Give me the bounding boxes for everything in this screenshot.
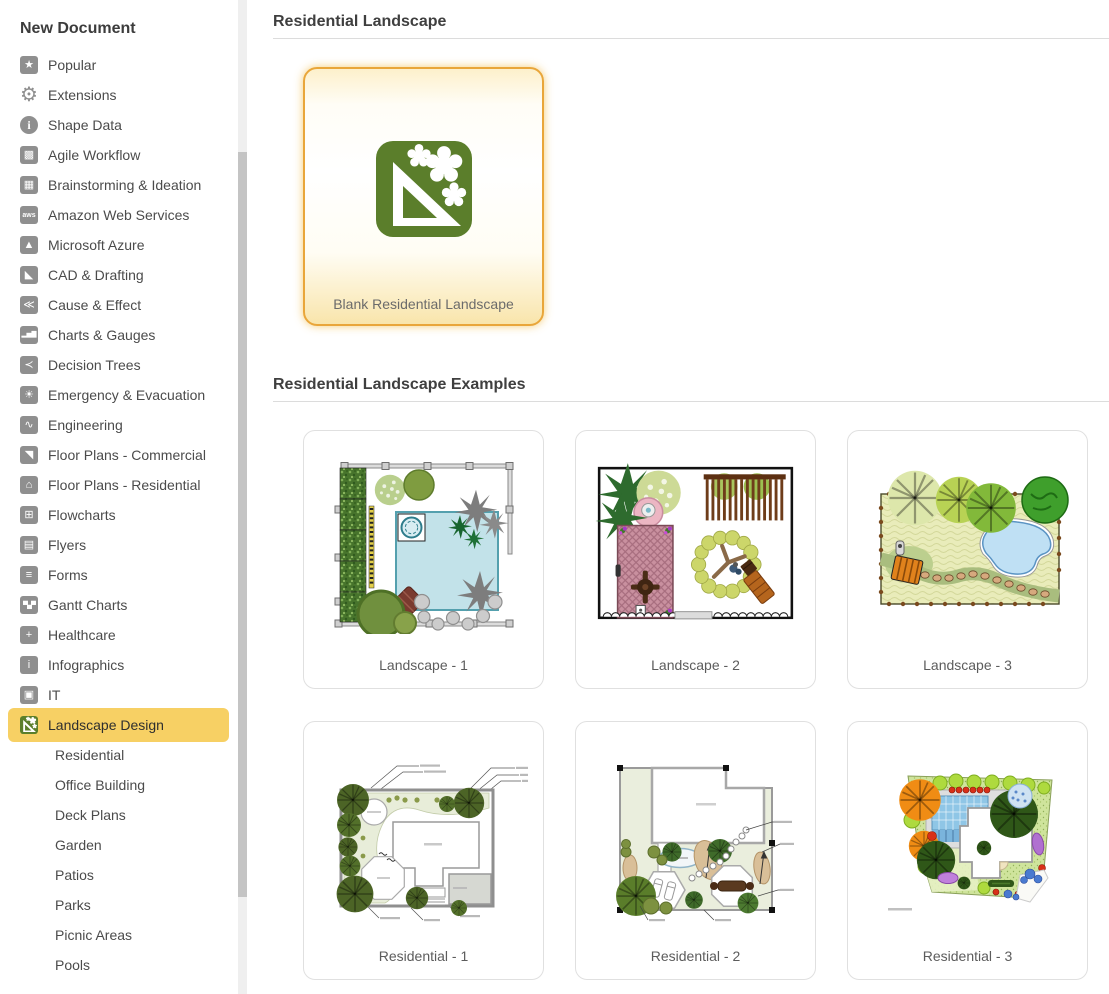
star-icon: ★ — [20, 56, 38, 74]
examples-row-2: Residential - 1 — [303, 721, 1109, 980]
flowchart-icon: ⊞ — [20, 506, 38, 524]
fishbone-icon: ≪ — [20, 296, 38, 314]
alarm-icon: ☀ — [20, 386, 38, 404]
sidebar-item-charts-gauges[interactable]: ▂▅▇ Charts & Gauges — [8, 320, 229, 350]
example-card-residential-2[interactable]: Residential - 2 — [575, 721, 816, 980]
sidebar-item-cause-effect[interactable]: ≪ Cause & Effect — [8, 290, 229, 320]
section-title-residential-landscape: Residential Landscape — [273, 13, 1109, 31]
section-divider — [273, 401, 1109, 402]
card-label: Residential - 1 — [379, 948, 469, 964]
section-divider — [273, 38, 1109, 39]
sidebar-item-healthcare[interactable]: + Healthcare — [8, 620, 229, 650]
set-square-icon: ◣ — [20, 266, 38, 284]
sidebar-item-flowcharts[interactable]: ⊞ Flowcharts — [8, 500, 229, 530]
sidebar: New Document ★ Popular ⚙ Extensions i Sh… — [0, 0, 238, 994]
kanban-icon: ▩ — [20, 146, 38, 164]
landscape-3-thumbnail — [848, 431, 1087, 657]
bar-chart-icon: ▂▅▇ — [20, 326, 38, 344]
flyer-icon: ▤ — [20, 536, 38, 554]
sidebar-subitem-office-building[interactable]: Office Building — [0, 770, 238, 800]
sidebar-item-floor-plans-residential[interactable]: ⌂ Floor Plans - Residential — [8, 470, 229, 500]
waveform-icon: ∿ — [20, 416, 38, 434]
sidebar-title: New Document — [20, 20, 238, 38]
form-icon: ≡ — [20, 566, 38, 584]
sidebar-item-popular[interactable]: ★ Popular — [8, 50, 229, 80]
residential-1-thumbnail — [304, 722, 543, 948]
landscape-1-thumbnail — [304, 431, 543, 657]
sidebar-item-brainstorming[interactable]: ▦ Brainstorming & Ideation — [8, 170, 229, 200]
sidebar-item-cad-drafting[interactable]: ◣ CAD & Drafting — [8, 260, 229, 290]
sidebar-subitem-patios[interactable]: Patios — [0, 860, 238, 890]
info-square-icon: i — [20, 656, 38, 674]
ruler-icon: ◥ — [20, 446, 38, 464]
example-card-landscape-1[interactable]: Landscape - 1 — [303, 430, 544, 689]
examples-row-1: Landscape - 1 — [303, 430, 1109, 689]
sidebar-subitem-deck-plans[interactable]: Deck Plans — [0, 800, 238, 830]
gantt-icon: ▀▄▀ — [20, 596, 38, 614]
sidebar-scrollbar[interactable] — [238, 0, 247, 994]
example-card-landscape-2[interactable]: Landscape - 2 — [575, 430, 816, 689]
sidebar-item-gantt-charts[interactable]: ▀▄▀ Gantt Charts — [8, 590, 229, 620]
sidebar-item-floor-plans-commercial[interactable]: ◥ Floor Plans - Commercial — [8, 440, 229, 470]
example-card-residential-3[interactable]: Residential - 3 — [847, 721, 1088, 980]
sidebar-item-landscape-design[interactable]: Landscape Design — [8, 708, 229, 742]
residential-2-thumbnail — [576, 722, 815, 948]
sidebar-item-it[interactable]: ▣ IT — [8, 680, 229, 710]
branch-icon: ≺ — [20, 356, 38, 374]
sidebar-item-aws[interactable]: aws Amazon Web Services — [8, 200, 229, 230]
network-icon: ▣ — [20, 686, 38, 704]
sidebar-item-agile-workflow[interactable]: ▩ Agile Workflow — [8, 140, 229, 170]
azure-icon: ▲ — [20, 236, 38, 254]
scrollbar-thumb[interactable] — [238, 152, 247, 897]
main-content: Residential Landscape Blank Residential … — [247, 0, 1109, 994]
landscape-2-thumbnail — [576, 431, 815, 657]
sidebar-item-emergency[interactable]: ☀ Emergency & Evacuation — [8, 380, 229, 410]
residential-3-thumbnail — [848, 722, 1087, 948]
example-card-landscape-3[interactable]: Landscape - 3 — [847, 430, 1088, 689]
sidebar-item-decision-trees[interactable]: ≺ Decision Trees — [8, 350, 229, 380]
blank-card-label: Blank Residential Landscape — [333, 296, 514, 312]
info-circle-icon: i — [20, 116, 38, 134]
sidebar-item-infographics[interactable]: i Infographics — [8, 650, 229, 680]
aws-icon: aws — [20, 206, 38, 224]
card-label: Landscape - 2 — [651, 657, 740, 673]
card-label: Residential - 2 — [651, 948, 741, 964]
example-card-residential-1[interactable]: Residential - 1 — [303, 721, 544, 980]
sidebar-subitem-parks[interactable]: Parks — [0, 890, 238, 920]
sidebar-item-flyers[interactable]: ▤ Flyers — [8, 530, 229, 560]
card-label: Landscape - 1 — [379, 657, 468, 673]
sidebar-subitem-picnic-areas[interactable]: Picnic Areas — [0, 920, 238, 950]
blank-residential-landscape-card[interactable]: Blank Residential Landscape — [303, 67, 544, 326]
landscape-design-icon — [20, 716, 38, 734]
grid-icon: ▦ — [20, 176, 38, 194]
card-label: Landscape - 3 — [923, 657, 1012, 673]
sidebar-subitem-residential[interactable]: Residential — [0, 740, 238, 770]
gear-icon: ⚙ — [20, 86, 38, 104]
house-icon: ⌂ — [20, 476, 38, 494]
sidebar-subitem-garden[interactable]: Garden — [0, 830, 238, 860]
sidebar-item-azure[interactable]: ▲ Microsoft Azure — [8, 230, 229, 260]
sidebar-item-extensions[interactable]: ⚙ Extensions — [8, 80, 229, 110]
landscape-design-icon — [376, 141, 472, 242]
sidebar-subitem-pools[interactable]: Pools — [0, 950, 238, 980]
sidebar-item-forms[interactable]: ≡ Forms — [8, 560, 229, 590]
sidebar-item-shape-data[interactable]: i Shape Data — [8, 110, 229, 140]
plus-icon: + — [20, 626, 38, 644]
sidebar-item-engineering[interactable]: ∿ Engineering — [8, 410, 229, 440]
card-label: Residential - 3 — [923, 948, 1013, 964]
section-title-examples: Residential Landscape Examples — [273, 376, 1109, 394]
